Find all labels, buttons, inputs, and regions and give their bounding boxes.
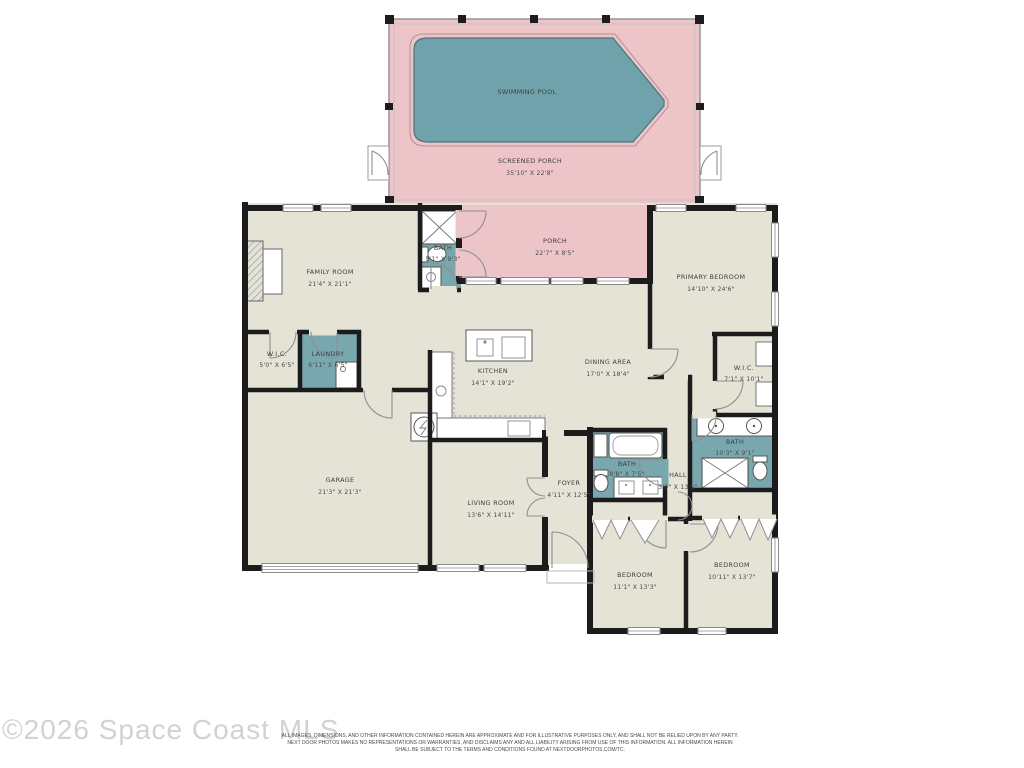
room-dims-foyer: 4'11" X 12'5" (547, 492, 591, 499)
room-label-bedroom-2: BEDROOM (714, 561, 750, 569)
room-label-porch: PORCH (543, 237, 567, 245)
room-label-dining-area: DINING AREA (585, 358, 632, 366)
floor-plan-page: SWIMMING POOL SCREENED PORCH 35'10" X 22… (0, 0, 1024, 768)
room-dims-screened-porch: 35'10" X 22'8" (506, 170, 554, 177)
room-dims-hall: 3'9" X 13'5" (658, 484, 697, 491)
room-label-screened-porch: SCREENED PORCH (498, 157, 562, 165)
room-label-bath-1: BATH (434, 244, 452, 252)
room-dims-wic-2: 7'1" X 10'1" (724, 376, 763, 383)
room-dims-bath-1: 5'1" X 9'3" (425, 256, 460, 263)
front-stoop (547, 571, 594, 583)
room-dims-wic-1: 5'0" X 6'5" (259, 362, 294, 369)
room-label-hall: HALL (669, 471, 687, 479)
room-dims-living-room: 13'6" X 14'11" (467, 512, 515, 519)
room-label-wic-1: W.I.C. (267, 350, 287, 358)
floor-plan-drawing: SWIMMING POOL SCREENED PORCH 35'10" X 22… (0, 0, 1024, 768)
room-dims-bedroom-2: 10'11" X 13'7" (708, 574, 756, 581)
room-label-living-room: LIVING ROOM (467, 499, 514, 507)
room-dims-primary-bedroom: 14'10" X 24'6" (687, 286, 735, 293)
screened-porch-area (368, 15, 721, 207)
room-label-primary-bedroom: PRIMARY BEDROOM (677, 273, 746, 281)
room-label-swimming-pool: SWIMMING POOL (498, 88, 557, 96)
room-label-bath-3: BATH (618, 460, 636, 468)
room-dims-garage: 21'3" X 21'3" (318, 489, 362, 496)
disclaimer-text: ALL IMAGES, DIMENSIONS, AND OTHER INFORM… (280, 733, 740, 753)
disclaimer-line-1: ALL IMAGES, DIMENSIONS, AND OTHER INFORM… (280, 733, 740, 740)
room-dims-bedroom-1: 11'1" X 13'3" (613, 584, 657, 591)
room-label-wic-2: W.I.C. (734, 364, 754, 372)
room-label-bath-2: BATH (726, 438, 744, 446)
room-dims-kitchen: 14'1" X 19'2" (471, 380, 515, 387)
room-label-bedroom-1: BEDROOM (617, 571, 653, 579)
disclaimer-line-2: NEXT DOOR PHOTOS MAKES NO REPRESENTATION… (280, 740, 740, 747)
room-dims-family-room: 21'4" X 21'1" (308, 281, 352, 288)
room-dims-bath-3: 8'8" X 7'5" (609, 471, 644, 478)
room-label-kitchen: KITCHEN (478, 367, 508, 375)
room-dims-dining-area: 17'0" X 18'4" (586, 371, 630, 378)
room-label-foyer: FOYER (558, 479, 581, 487)
room-label-garage: GARAGE (326, 476, 355, 484)
room-dims-laundry: 6'11" X 6'5" (308, 362, 347, 369)
room-dims-porch: 22'7" X 8'5" (535, 250, 574, 257)
room-dims-bath-2: 10'3" X 9'1" (715, 450, 754, 457)
disclaimer-line-3: SHALL BE SUBJECT TO THE TERMS AND CONDIT… (280, 747, 740, 754)
room-label-family-room: FAMILY ROOM (306, 268, 353, 276)
room-label-laundry: LAUNDRY (312, 350, 345, 358)
